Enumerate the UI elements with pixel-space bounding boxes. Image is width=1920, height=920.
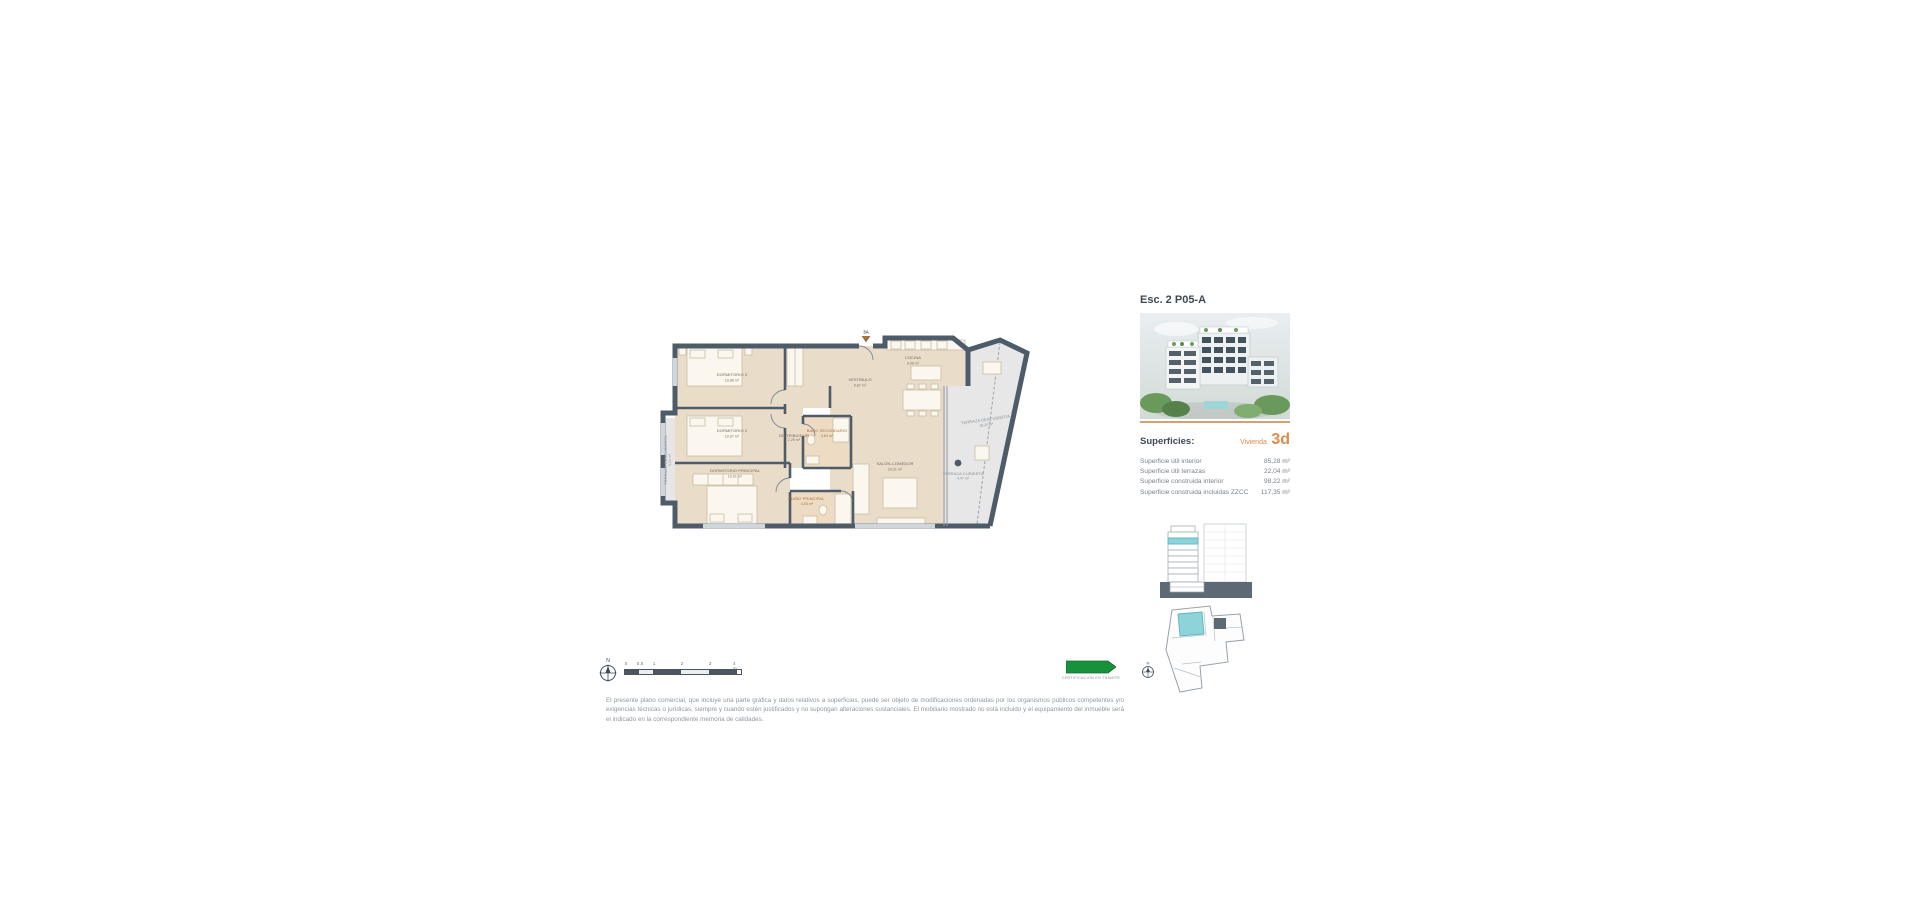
north-label: N [606,658,610,664]
surface-value: 22,04 m² [1264,467,1290,477]
scale-tick: 0 [625,661,628,666]
room-label-cocina-name: COCINA [905,355,921,360]
green-arrow-icon [1066,660,1116,674]
svg-text:N: N [1147,661,1150,666]
room-label-terraza-izquierda-area: 3,23 m² [668,453,672,466]
entrance-arrow-icon [862,336,871,343]
room-label-terraza-cubierta-name: TERRAZA CUBIERTA [942,471,983,476]
entrance-marker: 3A [862,330,871,343]
surface-row: Superficie construida interior 98,22 m² [1140,477,1290,487]
vivienda-badge: Vivienda 3d [1240,431,1290,449]
room-label-bano-principal-name: BAÑO PRINCIPAL [790,496,825,501]
room-label-vestibulo-area: 6,87 m² [854,384,867,388]
scale-labels: 0 0,5 1 2 3 4 m [624,661,742,667]
surface-row: Superficie útil interior 85,28 m² [1140,457,1290,467]
certification-caption: CERTIFICACIÓN EN TRÁMITE [1060,676,1122,680]
surface-value: 117,35 m² [1261,488,1290,498]
surface-value: 85,28 m² [1264,457,1290,467]
room-label-bano-secundario-name: BAÑO SECUNDARIO [807,428,848,433]
entrance-label: 3A [863,330,869,335]
room-label-distribuidor-area: 2,29 m² [788,438,801,442]
room-label-dormitorio-principal-name: DORMITORIO PRINCIPAL [710,468,761,473]
scale-bar: 0 0,5 1 2 3 4 m [624,661,742,677]
surface-label: Superficie útil terrazas [1140,467,1205,477]
room-label-dormitorio2-area: 10,07 m² [725,435,740,439]
stair-core [1214,618,1226,629]
highlighted-unit [1178,612,1204,636]
surface-label: Superficie construida incluidas ZZCC [1140,488,1248,498]
building-render-image [1140,313,1290,419]
floor-key-plan [1158,604,1254,706]
certification-badge: CERTIFICACIÓN EN TRÁMITE [1060,660,1122,680]
superficies-heading: Superficies: [1140,436,1194,447]
surface-label: Superficie útil interior [1140,457,1202,467]
orange-divider [1140,421,1290,423]
surface-value: 98,22 m² [1264,477,1290,487]
room-label-bano-secundario-area: 3,84 m² [821,434,834,438]
room-label-bano-principal-area: 4,03 m² [801,502,814,506]
legal-disclaimer: El presente plano comercial, que incluye… [606,696,1124,724]
plan-sheet-page: 3A DORMITORIO 3 10,88 m² DORMITORIO 2 10… [0,0,1920,920]
vivienda-code: 3d [1271,431,1290,448]
structural-column [955,460,962,467]
north-compass-icon: N [596,656,620,684]
room-label-terraza-cubierta-area: 4,47 m² [957,477,970,481]
surface-row: Superficie construida incluidas ZZCC 117… [1140,488,1290,498]
building-section-diagram [1150,518,1255,612]
scale-tick: 2 [681,661,684,666]
compass-mini-icon: N [1140,660,1156,680]
surface-row: Superficie útil terrazas 22,04 m² [1140,467,1290,477]
scale-tick: 1 [653,661,656,666]
room-label-cocina-area: 9,96 m² [907,362,920,366]
room-label-salon-comedor-area: 23,31 m² [888,468,903,472]
room-label-dormitorio3-area: 10,88 m² [725,379,740,383]
room-label-dormitorio2-name: DORMITORIO 2 [717,428,748,433]
unit-title: Esc. 2 P05-A [1140,294,1290,306]
info-panel: Esc. 2 P05-A [1140,294,1290,498]
room-label-dormitorio3-name: DORMITORIO 3 [717,372,748,377]
scale-track [624,669,742,675]
room-label-vestibulo-name: VESTÍBULO [848,377,871,382]
highlighted-floor [1168,538,1198,544]
room-label-salon-comedor-name: SALÓN-COMEDOR [876,461,913,466]
vivienda-label: Vivienda [1240,439,1267,446]
scale-tick: 0,5 [637,661,643,666]
surface-label: Superficie construida interior [1140,477,1224,487]
room-label-dormitorio-principal-area: 13,01 m² [728,475,743,479]
scale-tick: 3 [709,661,712,666]
floor-plan-drawing: 3A DORMITORIO 3 10,88 m² DORMITORIO 2 10… [655,328,1040,546]
